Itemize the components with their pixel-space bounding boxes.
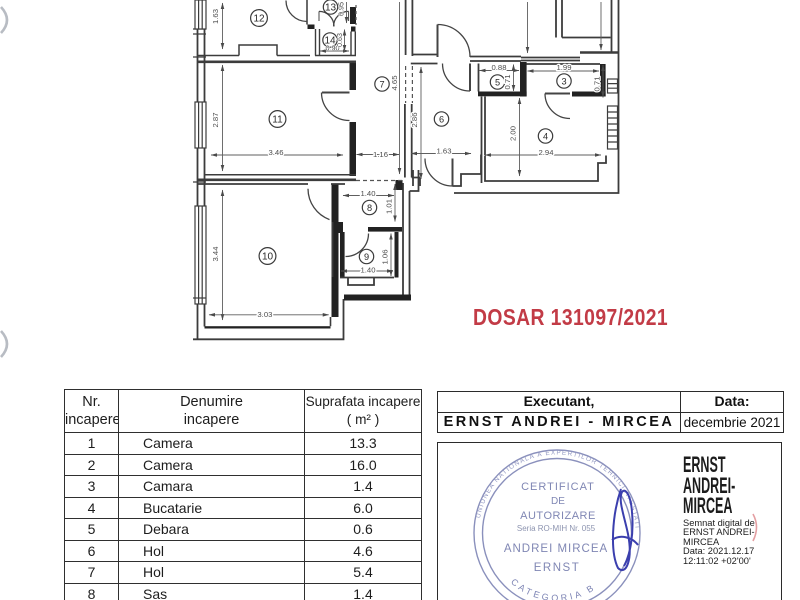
svg-text:4: 4 (543, 131, 548, 141)
svg-text:7: 7 (379, 79, 384, 89)
svg-text:2.86: 2.86 (410, 113, 419, 128)
svg-text:11: 11 (272, 115, 283, 126)
svg-text:1.99: 1.99 (557, 63, 572, 72)
svg-text:13: 13 (325, 2, 337, 13)
svg-text:4.65: 4.65 (390, 76, 399, 91)
svg-text:1.06: 1.06 (381, 250, 390, 265)
svg-text:2.87: 2.87 (211, 113, 220, 128)
svg-text:2.00: 2.00 (509, 126, 518, 141)
svg-text:5: 5 (495, 77, 500, 87)
svg-text:9: 9 (364, 252, 369, 262)
svg-text:3: 3 (561, 76, 566, 86)
svg-text:2.94: 2.94 (539, 148, 555, 157)
svg-text:1.40: 1.40 (361, 265, 376, 274)
svg-text:8: 8 (367, 203, 372, 213)
svg-text:10: 10 (262, 252, 274, 263)
svg-text:1.16: 1.16 (373, 150, 388, 159)
svg-text:1.40: 1.40 (361, 189, 376, 198)
svg-text:1.01: 1.01 (385, 199, 394, 214)
svg-text:1.63: 1.63 (437, 146, 452, 155)
svg-text:3.03: 3.03 (257, 310, 272, 319)
svg-text:12: 12 (253, 14, 265, 25)
svg-text:0.63: 0.63 (335, 33, 344, 47)
svg-text:0.71: 0.71 (503, 75, 512, 90)
svg-text:0.71: 0.71 (593, 77, 602, 92)
svg-text:6: 6 (439, 114, 444, 124)
svg-text:3.46: 3.46 (269, 148, 284, 157)
svg-text:0.88: 0.88 (492, 63, 507, 72)
svg-text:1.63: 1.63 (211, 9, 220, 24)
svg-text:3.44: 3.44 (211, 246, 220, 262)
svg-text:0.95: 0.95 (337, 2, 346, 16)
